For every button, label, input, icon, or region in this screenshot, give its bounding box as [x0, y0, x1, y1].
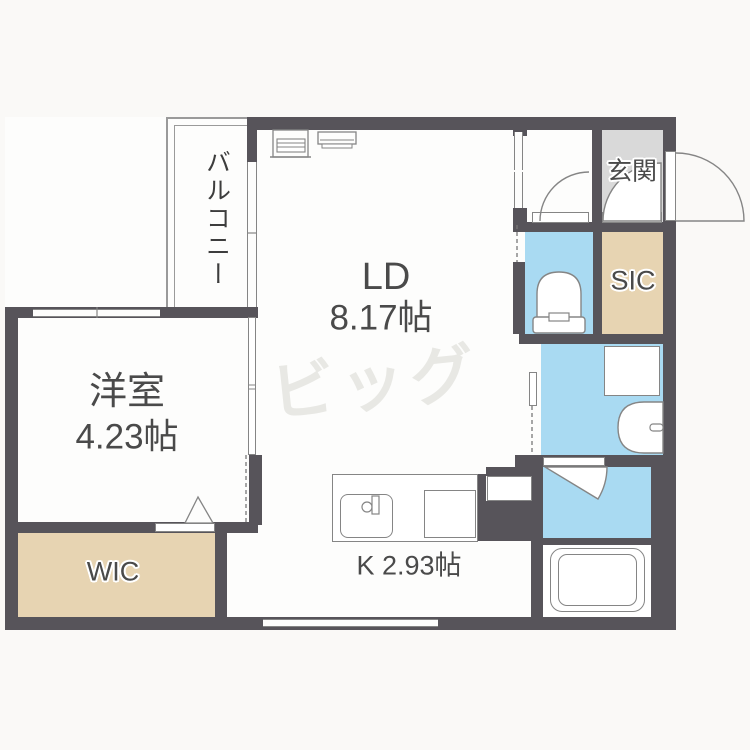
- window-partition-upper: [514, 132, 523, 170]
- wall-bathroom-west: [531, 467, 543, 617]
- wall-partition-mid-block: [513, 208, 527, 222]
- wall-wic-east: [215, 533, 227, 617]
- western-room-sliding-door: [248, 317, 256, 455]
- bathtub-inner: [558, 554, 637, 606]
- wall-washroom-north: [519, 334, 676, 344]
- front-door-leaf: [665, 151, 676, 221]
- kitchen-sink: [340, 494, 393, 538]
- wall-top: [250, 117, 676, 130]
- label-genkan: 玄関: [607, 160, 657, 185]
- sic-door-leaf: [602, 212, 662, 223]
- bathroom-door-leaf: [543, 457, 605, 466]
- toilet-floor: [525, 231, 593, 334]
- wall-toilet-sic-divider: [593, 231, 602, 334]
- wall-niche: [487, 476, 532, 501]
- label-kitchen: K 2.93帖: [356, 553, 461, 580]
- label-ld: LD: [362, 258, 411, 296]
- label-balcony: バルコニー: [204, 149, 229, 289]
- wall-balcony-right: [247, 117, 257, 162]
- kitchen-stove: [424, 490, 476, 538]
- washer-pan: [604, 346, 660, 396]
- wall-genkan-west: [592, 128, 602, 222]
- wall-left: [5, 307, 18, 630]
- washroom-sliding-door-leaf: [529, 372, 537, 406]
- label-western-room: 洋室: [89, 373, 165, 411]
- wic-door-leaf: [155, 523, 215, 532]
- window-partition-lower: [514, 172, 523, 208]
- floorplan-canvas: ビッグ LD 8.17帖 洋室 4.23帖 K 2.93帖 WIC SIC 玄関…: [0, 0, 750, 750]
- wall-bathroom-east: [651, 467, 663, 617]
- label-western-room-area: 4.23帖: [75, 420, 178, 455]
- window-western-room: [33, 309, 160, 317]
- window-balcony-door: [247, 162, 257, 307]
- wall-toilet-west: [513, 262, 525, 334]
- wall-kitchen-chunk: [475, 501, 533, 541]
- front-door-arc: [676, 153, 744, 221]
- toilet-door-leaf: [532, 212, 589, 223]
- bathroom-floor: [543, 467, 651, 538]
- wall-bath-connector: [486, 467, 543, 476]
- label-wic: WIC: [87, 559, 139, 586]
- wall-bath-tub-divider: [543, 538, 651, 545]
- label-ld-area: 8.17帖: [329, 301, 432, 336]
- window-kitchen: [263, 619, 438, 627]
- label-sic: SIC: [610, 268, 655, 295]
- wall-wic-north: [5, 522, 258, 533]
- wall-western-partition-low: [249, 455, 262, 525]
